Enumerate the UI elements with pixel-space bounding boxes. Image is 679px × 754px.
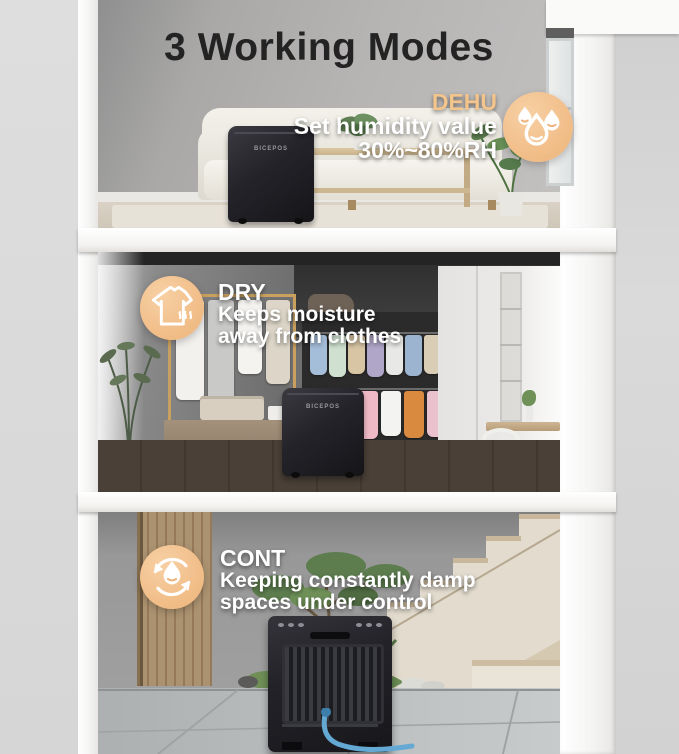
mode-cont-text: CONT Keeping constantly damp spaces unde… xyxy=(220,546,476,614)
hanging-shirt xyxy=(405,335,422,376)
mode-cont-line-2: spaces under control xyxy=(220,592,476,614)
frame-column-left xyxy=(78,0,98,754)
mode-dry-line-2: away from clothes xyxy=(218,326,401,348)
middle-ceiling xyxy=(98,252,560,265)
mode-dehu-line-1: Set humidity value xyxy=(294,114,497,138)
mode-dry-text: DRY Keeps moisture away from clothes xyxy=(218,280,401,348)
cycle-drop-icon xyxy=(140,545,204,609)
desk-vase-plant xyxy=(522,390,536,422)
caster-wheel xyxy=(291,472,300,478)
mode-cont-label: CONT xyxy=(220,546,476,570)
caster-wheel xyxy=(238,218,247,224)
water-drops-icon xyxy=(503,92,573,162)
mode-cont-line-1: Keeping constantly damp xyxy=(220,570,476,592)
hanging-garment xyxy=(404,391,424,438)
caster-wheel xyxy=(294,218,303,224)
floor-slab-1 xyxy=(78,228,616,252)
shirt-steam-icon xyxy=(140,276,204,340)
mode-dehu-label: DEHU xyxy=(294,90,497,114)
mode-dry-line-1: Keeps moisture xyxy=(218,304,401,326)
mode-dehu-text: DEHU Set humidity value 30%~80%RH xyxy=(294,90,497,162)
product-infographic: 3 Working Modes BICEPOS xyxy=(0,0,679,754)
caster-wheel xyxy=(345,472,354,478)
floor-slab-2 xyxy=(78,492,616,512)
outer-wall-left xyxy=(0,0,78,754)
drain-hose xyxy=(308,708,428,754)
window-light xyxy=(518,266,560,466)
control-buttons xyxy=(278,623,284,627)
mode-cont-badge xyxy=(140,545,204,609)
outer-wall-right xyxy=(616,0,679,754)
handle-slot xyxy=(310,632,350,639)
device-brand-label: BICEPOS xyxy=(282,404,364,410)
page-title: 3 Working Modes xyxy=(98,26,560,70)
hanging-garment xyxy=(381,391,401,436)
mode-dehu-line-2: 30%~80%RH xyxy=(294,138,497,162)
mode-dehu-badge xyxy=(503,92,573,162)
window-header xyxy=(546,28,574,38)
storage-box xyxy=(200,396,264,420)
mode-dry-badge xyxy=(140,276,204,340)
dehumidifier-middle: BICEPOS xyxy=(282,388,364,476)
mode-dry-label: DRY xyxy=(218,280,401,304)
